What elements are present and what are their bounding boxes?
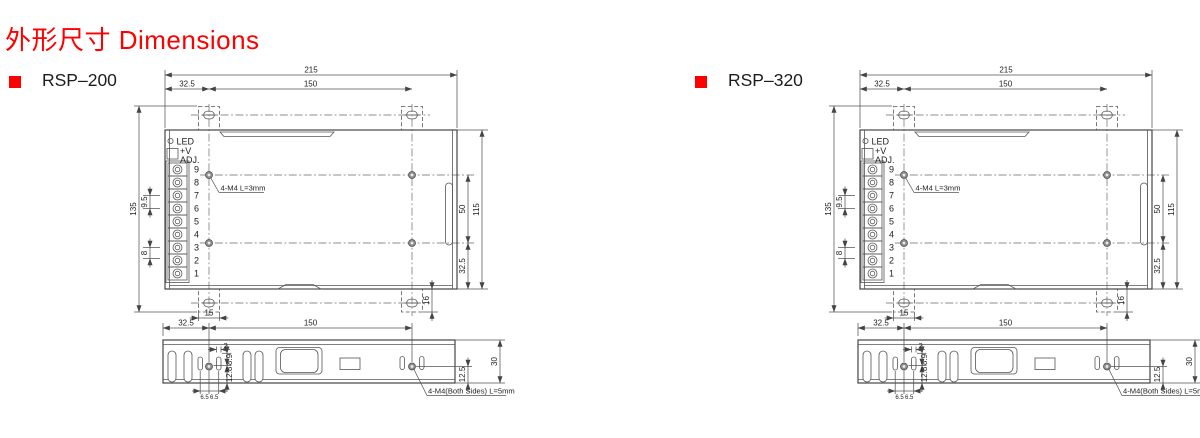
svg-text:15: 15 (205, 309, 214, 318)
svg-text:7: 7 (194, 191, 199, 201)
svg-text:12.8: 12.8 (920, 366, 929, 382)
svg-text:6.5: 6.5 (210, 395, 219, 401)
rsp-320-dimension-drawing: 987654321LED+VADJ.4-M4 L=3mm21532.515013… (795, 60, 1200, 412)
svg-text:ADJ.: ADJ. (875, 155, 895, 165)
svg-text:150: 150 (304, 319, 318, 328)
svg-text:4-M4 L=3mm: 4-M4 L=3mm (916, 184, 961, 193)
svg-text:115: 115 (1167, 203, 1176, 216)
svg-text:4-M4(Both Sides) L=5mm: 4-M4(Both Sides) L=5mm (428, 387, 515, 396)
side-view: 4-M4(Both Sides) L=5mm32.51503012.528.91… (163, 319, 515, 402)
svg-text:3: 3 (194, 243, 199, 253)
svg-text:8.9: 8.9 (920, 353, 929, 365)
svg-text:150: 150 (999, 80, 1013, 89)
svg-text:2: 2 (194, 256, 199, 266)
svg-text:32.5: 32.5 (874, 80, 890, 89)
dimension-drawing-svg: 987654321LED+VADJ.4-M4 L=3mm21532.515013… (100, 60, 524, 412)
svg-text:9.5: 9.5 (140, 196, 149, 208)
dimensions-page: 外形尺寸 Dimensions RSP–200 RSP–320 98765432… (0, 0, 1200, 438)
svg-text:50: 50 (1153, 204, 1162, 213)
svg-text:9: 9 (194, 165, 199, 175)
svg-text:8: 8 (889, 178, 894, 188)
svg-text:150: 150 (304, 80, 318, 89)
svg-text:215: 215 (304, 66, 318, 75)
svg-text:9.5: 9.5 (835, 196, 844, 208)
svg-text:16: 16 (422, 296, 431, 305)
svg-text:115: 115 (472, 203, 481, 216)
svg-text:135: 135 (129, 202, 138, 216)
svg-text:32.5: 32.5 (1153, 258, 1162, 274)
dimension-drawing-svg: 987654321LED+VADJ.4-M4 L=3mm21532.515013… (795, 60, 1200, 412)
svg-text:5: 5 (194, 217, 199, 227)
svg-text:6: 6 (889, 204, 894, 214)
top-view: 987654321LED+VADJ.4-M4 L=3mm21532.515013… (824, 66, 1183, 322)
svg-text:1: 1 (889, 269, 894, 279)
svg-text:8.9: 8.9 (225, 353, 234, 365)
svg-text:6.5: 6.5 (895, 395, 904, 401)
svg-text:7: 7 (889, 191, 894, 201)
svg-text:32.5: 32.5 (178, 319, 194, 328)
svg-text:4-M4(Both Sides) L=5mm: 4-M4(Both Sides) L=5mm (1123, 387, 1200, 396)
svg-text:4-M4 L=3mm: 4-M4 L=3mm (221, 184, 266, 193)
page-title: 外形尺寸 Dimensions (5, 26, 260, 55)
rsp-320-label: RSP–320 (728, 70, 803, 91)
svg-text:1: 1 (194, 269, 199, 279)
svg-text:15: 15 (900, 309, 909, 318)
svg-text:6: 6 (194, 204, 199, 214)
top-view: 987654321LED+VADJ.4-M4 L=3mm21532.515013… (129, 66, 488, 322)
svg-text:ADJ.: ADJ. (180, 155, 200, 165)
svg-text:32.5: 32.5 (458, 258, 467, 274)
svg-text:12.5: 12.5 (1153, 366, 1162, 382)
svg-text:215: 215 (999, 66, 1013, 75)
svg-text:2: 2 (889, 256, 894, 266)
svg-text:16: 16 (1117, 296, 1126, 305)
svg-text:150: 150 (999, 319, 1013, 328)
svg-text:135: 135 (824, 202, 833, 216)
svg-text:3: 3 (889, 243, 894, 253)
rsp-200-bullet-icon (9, 76, 21, 88)
svg-text:32.5: 32.5 (873, 319, 889, 328)
rsp-320-bullet-icon (695, 76, 707, 88)
svg-text:5: 5 (889, 217, 894, 227)
rsp-200-dimension-drawing: 987654321LED+VADJ.4-M4 L=3mm21532.515013… (100, 60, 524, 412)
svg-text:32.5: 32.5 (179, 80, 195, 89)
svg-text:30: 30 (1185, 357, 1194, 366)
svg-text:6.5: 6.5 (200, 395, 209, 401)
svg-text:30: 30 (490, 357, 499, 366)
svg-text:8: 8 (194, 178, 199, 188)
svg-text:4: 4 (889, 230, 894, 240)
svg-text:4: 4 (194, 230, 199, 240)
svg-text:12.5: 12.5 (458, 366, 467, 382)
svg-text:8: 8 (140, 250, 149, 255)
svg-text:6.5: 6.5 (905, 395, 914, 401)
side-view: 4-M4(Both Sides) L=5mm32.51503012.528.91… (858, 319, 1200, 402)
svg-text:LED: LED (177, 137, 195, 147)
svg-text:12.8: 12.8 (225, 366, 234, 382)
svg-text:LED: LED (872, 137, 890, 147)
svg-text:50: 50 (458, 204, 467, 213)
svg-text:8: 8 (835, 250, 844, 255)
svg-text:9: 9 (889, 165, 894, 175)
